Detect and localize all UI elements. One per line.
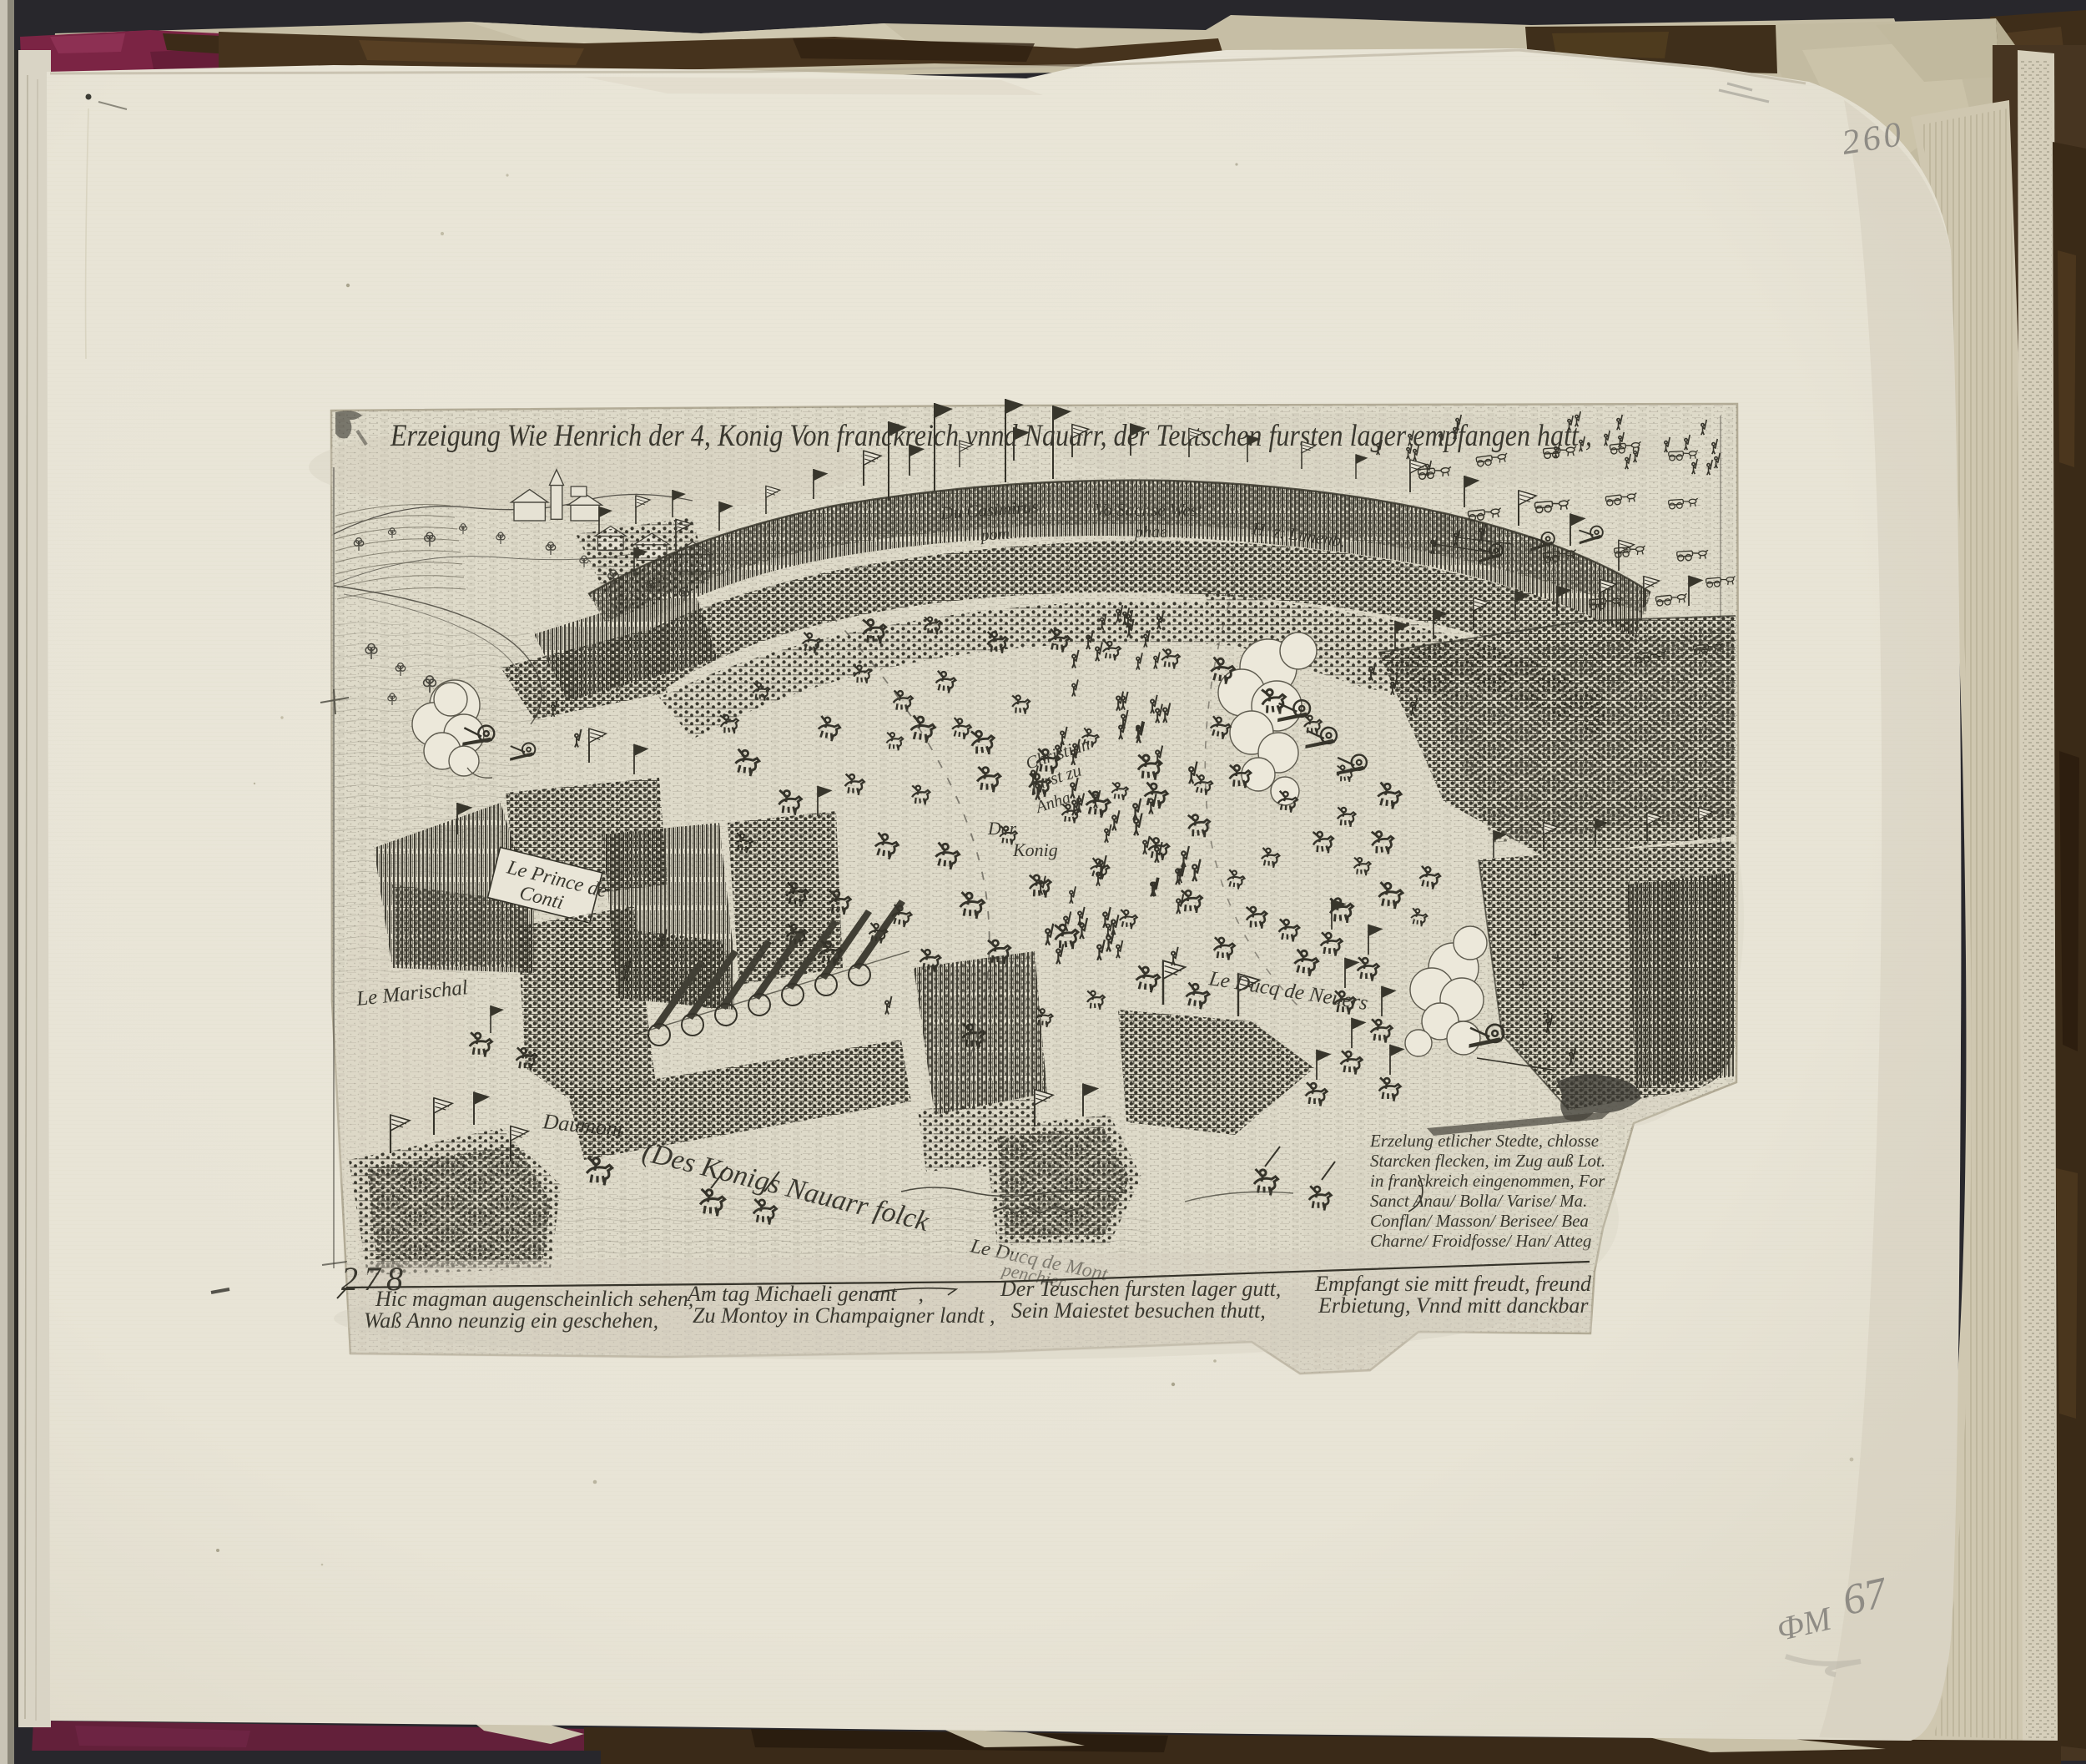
svg-text:Vo Sachse West: Vo Sachse West <box>1095 500 1203 520</box>
svg-text:Sanct Anau/ Bolla/ Varise/ Ma.: Sanct Anau/ Bolla/ Varise/ Ma. <box>1370 1191 1587 1211</box>
svg-text:Der: Der <box>987 818 1017 839</box>
svg-text:Konig: Konig <box>1012 839 1058 860</box>
svg-text:Zu Montoy in Champaigner landt: Zu Montoy in Champaigner landt , <box>693 1303 995 1328</box>
svg-text:Waß Anno neunzig ein geschehen: Waß Anno neunzig ein geschehen, <box>364 1308 658 1333</box>
svg-text:Hic magman augenscheinlich seh: Hic magman augenscheinlich sehen, <box>375 1287 693 1311</box>
svg-text:Erzelung etlicher Stedte, chlo: Erzelung etlicher Stedte, chlosse <box>1369 1131 1599 1151</box>
svg-text:in franckreich eingenommen, Fo: in franckreich eingenommen, For <box>1370 1171 1605 1191</box>
svg-text:Starcken flecken, im Zug auß L: Starcken flecken, im Zug auß Lot. <box>1370 1151 1605 1171</box>
svg-text:Der Teuschen fursten lager gut: Der Teuschen fursten lager gutt, <box>1000 1277 1281 1301</box>
svg-text:phae: phae <box>1133 523 1167 542</box>
svg-text:Conflan/ Masson/ Berisee/ Bea: Conflan/ Masson/ Berisee/ Bea <box>1370 1211 1589 1231</box>
svg-text:Sein Maiestet besuchen thutt,: Sein Maiestet besuchen thutt, <box>1011 1298 1266 1323</box>
svg-text:Am tag Michaeli genant ,: Am tag Michaeli genant , <box>686 1282 924 1306</box>
svg-text:pom: pom <box>979 525 1010 545</box>
svg-text:Erbietung, Vnnd mitt danckbar: Erbietung, Vnnd mitt danckbar <box>1318 1293 1589 1318</box>
svg-text:Empfangt sie mitt freudt, freu: Empfangt sie mitt freudt, freund <box>1314 1272 1592 1296</box>
svg-text:Charne/ Froidfosse/ Han/ Atteg: Charne/ Froidfosse/ Han/ Atteg <box>1370 1231 1591 1251</box>
